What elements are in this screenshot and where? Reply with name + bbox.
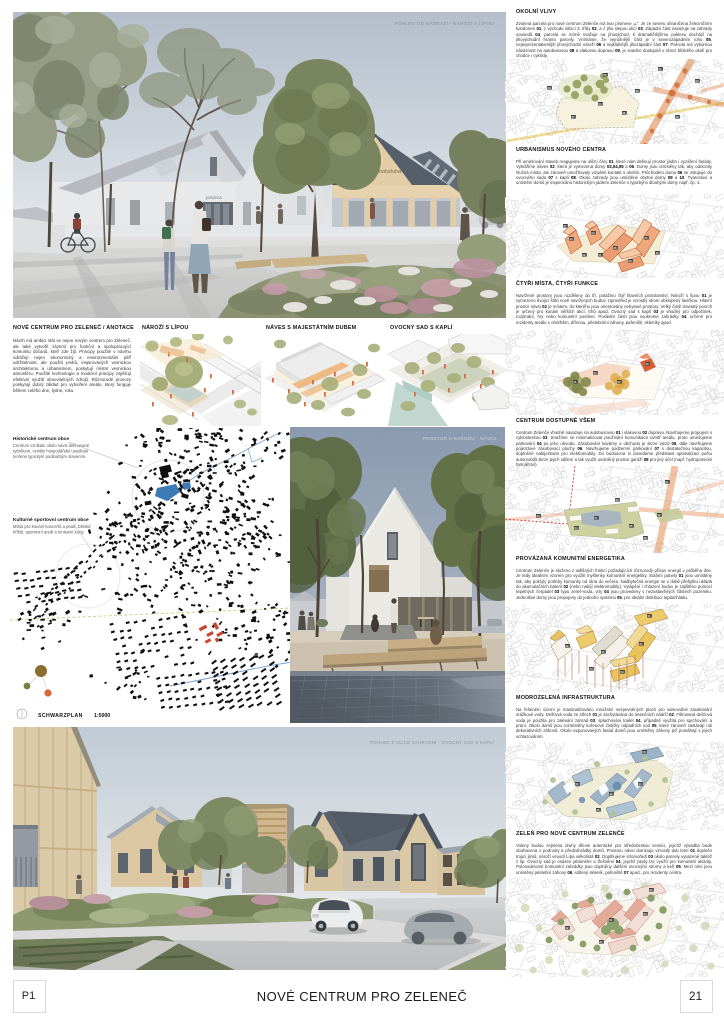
svg-text:02: 02 — [566, 926, 570, 930]
svg-text:hřiště, sportovní areál a teni: hřiště, sportovní areál a tenisové kurty… — [13, 530, 85, 535]
svg-text:Centrum vznikalo okolo návsi d: Centrum vznikalo okolo návsi definované — [13, 443, 90, 448]
svg-text:03: 03 — [537, 514, 541, 518]
svg-text:07: 07 — [572, 115, 576, 119]
svg-text:POHLED Z ULICE ZAHRADNÍ - OV: POHLED Z ULICE ZAHRADNÍ - OVOCNÝ SAD S K… — [370, 740, 494, 745]
svg-text:tvořené typickým podlouhlým st: tvořené typickým podlouhlým stavením. — [13, 454, 86, 459]
svg-text:Historické centrum obce: Historické centrum obce — [13, 436, 69, 442]
svg-text:07: 07 — [564, 224, 568, 228]
svg-text:05: 05 — [597, 808, 601, 812]
svg-text:08: 08 — [636, 89, 640, 93]
svg-text:03: 03 — [650, 888, 654, 892]
svg-text:Místo pro konání koncertů a po: Místo pro konání koncertů a poutí. Dětsk… — [13, 524, 91, 529]
svg-text:05: 05 — [630, 524, 634, 528]
svg-text:01: 01 — [648, 614, 652, 618]
svg-text:08: 08 — [644, 536, 648, 540]
svg-text:06: 06 — [614, 246, 618, 250]
svg-text:03: 03 — [643, 750, 647, 754]
svg-text:01: 01 — [610, 918, 614, 922]
svg-text:05: 05 — [604, 73, 608, 77]
svg-text:09: 09 — [696, 79, 700, 83]
svg-text:1:5000: 1:5000 — [94, 713, 110, 719]
svg-text:02: 02 — [676, 115, 680, 119]
svg-text:07: 07 — [595, 516, 599, 520]
svg-text:04: 04 — [599, 102, 603, 106]
svg-text:01: 01 — [576, 782, 580, 786]
svg-text:06: 06 — [616, 498, 620, 502]
svg-text:01: 01 — [574, 380, 578, 384]
svg-text:03: 03 — [646, 362, 650, 366]
svg-text:05: 05 — [645, 236, 649, 240]
svg-text:01: 01 — [659, 67, 663, 71]
svg-text:04: 04 — [592, 231, 596, 235]
svg-text:02: 02 — [583, 253, 587, 257]
svg-text:06: 06 — [623, 111, 627, 115]
svg-text:POHLED OD NÁDRAŽÍ - NÁROŽÍ S: POHLED OD NÁDRAŽÍ - NÁROŽÍ S LÍPOU — [394, 19, 494, 26]
svg-text:SCHWARZPLAN: SCHWARZPLAN — [38, 713, 83, 719]
svg-text:05: 05 — [600, 940, 604, 944]
svg-text:pekárna: pekárna — [206, 195, 222, 200]
svg-text:05: 05 — [602, 650, 606, 654]
svg-text:02: 02 — [658, 513, 662, 517]
svg-text:01: 01 — [666, 480, 670, 484]
svg-text:03: 03 — [621, 670, 625, 674]
svg-text:rybníkem, vznikly hospodářské: rybníkem, vznikly hospodářské usedlosti — [13, 449, 88, 454]
svg-text:04: 04 — [575, 526, 579, 530]
svg-text:04: 04 — [644, 912, 648, 916]
svg-text:09: 09 — [629, 259, 633, 263]
svg-text:04: 04 — [594, 371, 598, 375]
svg-text:04: 04 — [639, 782, 643, 786]
svg-text:01: 01 — [640, 642, 644, 646]
svg-text:02: 02 — [610, 792, 614, 796]
svg-text:02: 02 — [566, 644, 570, 648]
svg-text:03: 03 — [548, 86, 552, 90]
svg-text:01: 01 — [599, 253, 603, 257]
svg-text:10: 10 — [656, 251, 660, 255]
svg-text:Kulturně sportovní centrum obc: Kulturně sportovní centrum obce — [13, 517, 89, 523]
svg-text:03: 03 — [570, 237, 574, 241]
svg-text:04: 04 — [590, 667, 594, 671]
svg-text:PROSTOR S KAŠNOU - NÁVES: PROSTOR S KAŠNOU - NÁVES — [422, 435, 497, 441]
svg-text:02: 02 — [618, 380, 622, 384]
